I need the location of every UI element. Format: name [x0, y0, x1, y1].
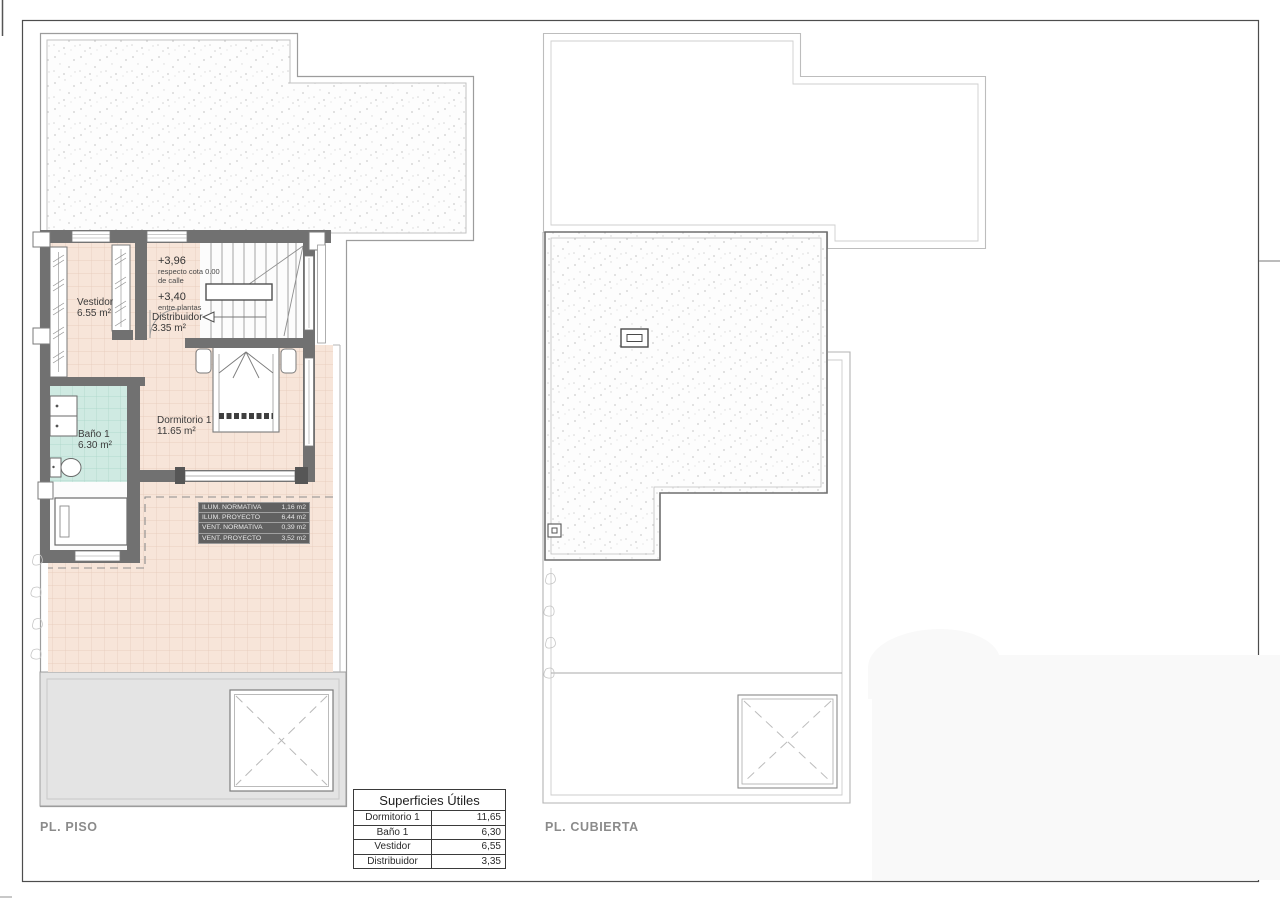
toilet — [50, 458, 81, 477]
vegetation-marks — [544, 573, 556, 678]
roof-area — [545, 232, 827, 560]
staircase — [200, 243, 303, 338]
pillar — [38, 482, 53, 499]
plan-title-cubierta: PL. CUBIERTA — [545, 820, 639, 834]
level-upper: +3,96 — [158, 255, 186, 268]
patio-void-left — [230, 690, 333, 791]
bathroom — [50, 386, 127, 550]
room-label-dormitorio: Dormitorio 111.65 m² — [157, 415, 211, 438]
level-upper-note2: de calle — [158, 277, 184, 286]
room-label-vestidor: Vestidor6.55 m² — [77, 297, 113, 320]
roof-drain — [548, 524, 561, 537]
nightstand-left — [196, 349, 211, 373]
ilum-row: VENT. NORMATIVA0,39 m2 — [199, 522, 309, 532]
pillar — [33, 328, 50, 344]
vanity-sinks — [50, 396, 77, 436]
drawing-sheet: Vestidor6.55 m² Baño 16.30 m² Dormitorio… — [0, 0, 1280, 905]
plan-title-piso: PL. PISO — [40, 820, 98, 834]
surfaces-table: Superficies Útiles Dormitorio 1 11,65 Ba… — [353, 789, 506, 869]
ilum-row: VENT. PROYECTO3,52 m2 — [199, 533, 309, 543]
table-row: Baño 1 6,30 — [354, 826, 505, 841]
patio-void-right — [738, 695, 837, 788]
surfaces-table-title: Superficies Útiles — [354, 790, 505, 811]
ilum-vent-table: ILUM. NORMATIVA1,16 m2 ILUM. PROYECTO6,4… — [198, 502, 310, 544]
ilum-row: ILUM. PROYECTO6,44 m2 — [199, 512, 309, 522]
upper-terrace-outline — [544, 34, 986, 249]
pillar — [33, 232, 50, 247]
room-label-bano: Baño 16.30 m² — [78, 429, 112, 452]
nightstand-right — [281, 349, 296, 373]
ilum-row: ILUM. NORMATIVA1,16 m2 — [199, 503, 309, 512]
table-row: Vestidor 6,55 — [354, 840, 505, 855]
room-label-distribuidor: Distribuidor3.35 m² — [152, 312, 203, 335]
floor-plan-left — [31, 34, 474, 807]
stair-landing-rail — [206, 284, 272, 300]
chimney — [621, 329, 648, 347]
bathtub — [55, 498, 127, 545]
upper-terrace-stipple — [47, 40, 466, 233]
scan-shadow — [872, 655, 1280, 880]
level-mid: +3,40 — [158, 291, 186, 304]
table-row: Distribuidor 3,35 — [354, 855, 505, 869]
level-mid-note: entre plantas — [158, 304, 201, 313]
table-row: Dormitorio 1 11,65 — [354, 811, 505, 826]
